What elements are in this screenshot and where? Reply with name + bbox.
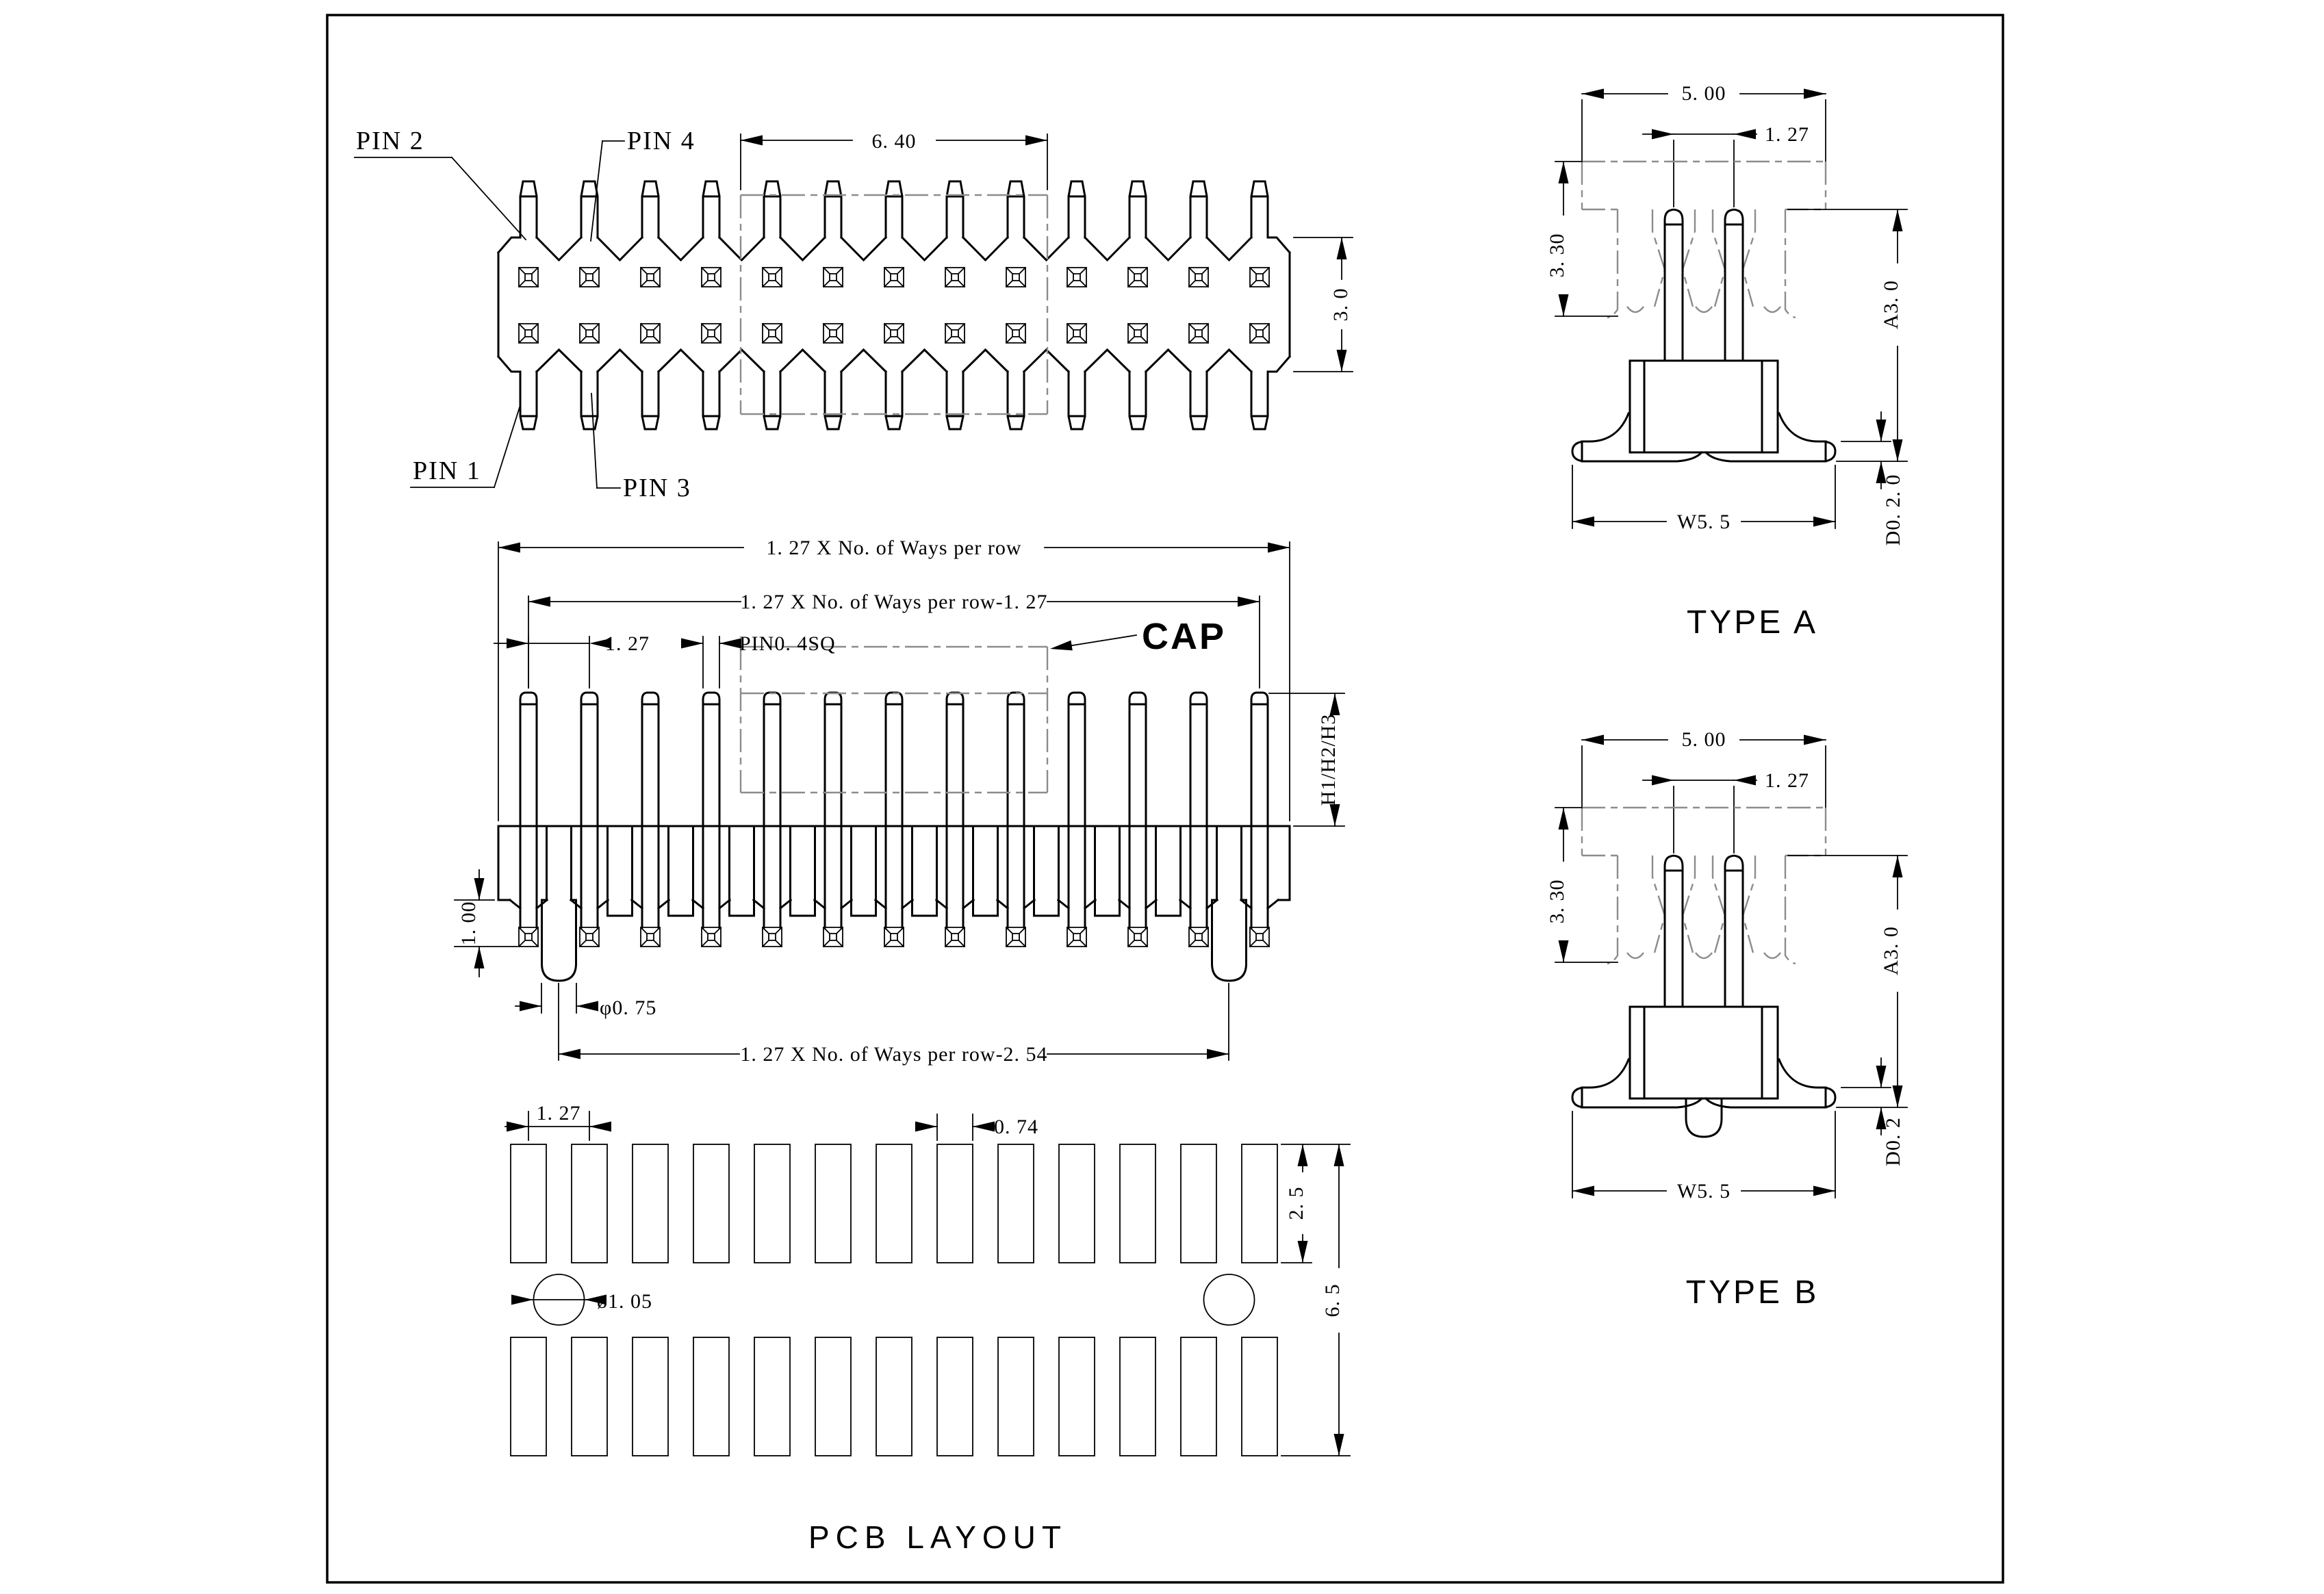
body-bottom-comb bbox=[498, 900, 1290, 916]
type-a-view: 5. 00 1. 27 3. 30 A3. 0 D0. 2. 0 W5. 5 T… bbox=[1546, 82, 1907, 641]
pin-contact-square bbox=[763, 324, 782, 343]
pcb-pad-top bbox=[815, 1144, 851, 1263]
smt-lead-left bbox=[1572, 413, 1702, 461]
front-pin bbox=[1190, 693, 1207, 826]
side-body bbox=[1630, 361, 1778, 452]
dimension-arrow bbox=[1582, 735, 1604, 745]
pcb-pad-top bbox=[998, 1144, 1034, 1263]
top-pin bbox=[764, 181, 780, 237]
dim-body-height: 3. 0 bbox=[1329, 288, 1352, 322]
dimension-arrow bbox=[1298, 1144, 1308, 1166]
dimension-arrow bbox=[1334, 1434, 1344, 1456]
side-pin bbox=[1665, 209, 1683, 361]
pcb-pad-top bbox=[1242, 1144, 1277, 1263]
pin-contact-square bbox=[1250, 324, 1269, 343]
pin2-label: PIN 2 bbox=[356, 127, 424, 155]
pin-contact-square bbox=[702, 324, 721, 343]
pin1-label: PIN 1 bbox=[413, 457, 481, 485]
pin-contact-square bbox=[1189, 927, 1208, 947]
pin3-label: PIN 3 bbox=[623, 474, 691, 502]
pin-contact-square bbox=[1006, 927, 1025, 947]
pin-contact-square bbox=[641, 268, 660, 287]
pcb-pad-bottom bbox=[754, 1337, 790, 1456]
side-pin bbox=[1725, 209, 1743, 361]
cap-phantom-outline bbox=[741, 195, 1047, 414]
dimension-arrow bbox=[1652, 775, 1674, 786]
dimension-arrow bbox=[1734, 129, 1756, 140]
pin-contact-square bbox=[884, 268, 904, 287]
bottom-pin bbox=[1008, 372, 1024, 429]
top-pin bbox=[520, 181, 537, 237]
dimension-arrow bbox=[1268, 543, 1290, 553]
front-pin bbox=[1008, 693, 1024, 826]
type-b-dim-cap-height: 3. 30 bbox=[1546, 879, 1568, 924]
dim-total-width: 1. 27 X No. of Ways per row bbox=[766, 537, 1021, 559]
dim-cap-width: 6. 40 bbox=[872, 130, 917, 153]
smt-lead-right bbox=[1706, 413, 1835, 461]
pin-contact-square bbox=[823, 268, 843, 287]
dimension-arrow bbox=[1559, 162, 1569, 183]
pin-contact-square bbox=[1128, 927, 1147, 947]
top-view: PIN 2 PIN 4 PIN 1 PIN 3 6. 40 3. 0 bbox=[355, 127, 1353, 502]
mating-socket-phantom bbox=[1582, 808, 1826, 856]
bottom-pin bbox=[1251, 372, 1268, 429]
pin-contact-square bbox=[580, 324, 599, 343]
dimension-arrow bbox=[1804, 735, 1826, 745]
type-a-label: TYPE A bbox=[1687, 604, 1818, 641]
pin-contact-square bbox=[641, 927, 660, 947]
technical-drawing: PIN 2 PIN 4 PIN 1 PIN 3 6. 40 3. 0 1. 27… bbox=[0, 0, 2324, 1594]
pin-contact-square bbox=[945, 268, 965, 287]
dim-pin-span: 1. 27 X No. of Ways per row-1. 27 bbox=[740, 591, 1047, 613]
top-pin bbox=[1251, 181, 1268, 237]
dimension-arrow bbox=[1893, 1085, 1903, 1107]
pin-contact-square bbox=[823, 324, 843, 343]
socket-contact-tip-phantom bbox=[1764, 307, 1780, 312]
pin-contact-square bbox=[884, 927, 904, 947]
smt-lead-right bbox=[1706, 1059, 1835, 1107]
dimension-arrow bbox=[1330, 693, 1340, 715]
dimension-arrow bbox=[1813, 1186, 1835, 1196]
bottom-pin bbox=[886, 372, 902, 429]
dimension-arrow bbox=[1572, 517, 1594, 527]
dimension-arrow bbox=[1876, 1066, 1887, 1088]
pin-contact-square bbox=[945, 927, 965, 947]
pcb-layout-geometry bbox=[505, 1111, 1350, 1456]
type-a-dim-pitch: 1. 27 bbox=[1765, 123, 1809, 146]
pcb-pad-bottom bbox=[633, 1337, 668, 1456]
pcb-pad-bottom bbox=[998, 1337, 1034, 1456]
pin4-label: PIN 4 bbox=[627, 127, 695, 155]
socket-contact-tip-phantom bbox=[1764, 953, 1780, 958]
top-pin bbox=[642, 181, 659, 237]
dimension-arrow bbox=[681, 639, 703, 649]
pin-contact-square bbox=[763, 927, 782, 947]
locating-peg bbox=[1212, 900, 1247, 981]
dimension-arrow bbox=[1734, 775, 1756, 786]
side-body bbox=[1630, 1007, 1778, 1098]
type-b-view: 5. 00 1. 27 3. 30 A3. 0 D0. 2 W5. 5 TYPE… bbox=[1546, 728, 1907, 1311]
dimension-arrow bbox=[1559, 808, 1569, 830]
dimension-arrow bbox=[511, 1295, 533, 1305]
bottom-pin bbox=[1190, 372, 1207, 429]
pcb-pad-top bbox=[693, 1144, 729, 1263]
pin3-leader bbox=[591, 394, 597, 488]
socket-wall-phantom bbox=[1607, 209, 1796, 318]
pcb-dim-hole: ø1. 05 bbox=[597, 1290, 652, 1313]
dimension-arrow bbox=[1025, 136, 1047, 146]
pcb-hole-right bbox=[1204, 1274, 1255, 1325]
bottom-pin bbox=[947, 372, 963, 429]
dimension-arrow bbox=[1298, 1241, 1308, 1263]
pin-contact-square bbox=[945, 324, 965, 343]
pcb-pad-bottom bbox=[1181, 1337, 1216, 1456]
type-a-dim-a: A3. 0 bbox=[1880, 280, 1902, 329]
pin-contact-square bbox=[1006, 268, 1025, 287]
front-pin bbox=[1069, 693, 1085, 826]
dim-pitch: 1. 27 bbox=[605, 632, 650, 655]
top-pin bbox=[947, 181, 963, 237]
dimension-arrow bbox=[1893, 856, 1903, 877]
pcb-pad-bottom bbox=[815, 1337, 851, 1456]
bottom-pin bbox=[642, 372, 659, 429]
locating-peg bbox=[542, 900, 576, 981]
pin-contact-square bbox=[884, 324, 904, 343]
type-b-dim-pitch: 1. 27 bbox=[1765, 769, 1809, 792]
dimension-arrow bbox=[1893, 439, 1903, 461]
dimension-arrow bbox=[1893, 209, 1903, 231]
pcb-pad-bottom bbox=[1059, 1337, 1095, 1456]
top-pin bbox=[1190, 181, 1207, 237]
dimension-arrow bbox=[1559, 940, 1569, 962]
pcb-pad-bottom bbox=[937, 1337, 973, 1456]
pcb-pad-bottom bbox=[511, 1337, 546, 1456]
pin2-leader bbox=[452, 157, 526, 240]
dimension-arrow bbox=[474, 878, 485, 900]
type-b-dim-w: W5. 5 bbox=[1677, 1180, 1731, 1203]
dimension-arrow bbox=[559, 1049, 580, 1059]
pin-contact-square bbox=[519, 324, 538, 343]
type-b-label: TYPE B bbox=[1686, 1274, 1819, 1311]
pin-contact-square bbox=[1189, 324, 1208, 343]
dimension-arrow bbox=[498, 543, 520, 553]
pcb-dim-pitch: 1. 27 bbox=[537, 1102, 581, 1124]
side-pin bbox=[1725, 856, 1743, 1007]
dim-pin-square: PIN0. 4SQ bbox=[739, 632, 836, 655]
pcb-pad-top bbox=[1120, 1144, 1155, 1263]
pcb-pad-bottom bbox=[1120, 1337, 1155, 1456]
pcb-pad-top bbox=[511, 1144, 546, 1263]
type-b-geometry bbox=[1555, 735, 1907, 1198]
front-view: 1. 27 X No. of Ways per row 1. 27 X No. … bbox=[455, 537, 1344, 1066]
type-b-dim-width: 5. 00 bbox=[1682, 728, 1726, 751]
dimension-arrow bbox=[741, 136, 763, 146]
dim-peg-diameter: φ0. 75 bbox=[600, 997, 656, 1019]
pcb-pad-bottom bbox=[572, 1337, 607, 1456]
mating-socket-phantom bbox=[1582, 162, 1826, 209]
type-b-dim-a: A3. 0 bbox=[1880, 926, 1902, 975]
dimension-arrow bbox=[1876, 420, 1887, 441]
top-pin bbox=[1069, 181, 1085, 237]
type-a-dim-width: 5. 00 bbox=[1682, 82, 1726, 105]
front-pin bbox=[764, 693, 780, 826]
pin-contact-square bbox=[1250, 268, 1269, 287]
header-body-outline bbox=[498, 237, 1290, 372]
dimension-arrow bbox=[507, 639, 528, 649]
dimension-arrow bbox=[915, 1122, 937, 1132]
pin1-leader bbox=[494, 405, 520, 487]
dimension-arrow bbox=[719, 639, 741, 649]
front-pin bbox=[886, 693, 902, 826]
socket-contact-tip-phantom bbox=[1696, 307, 1712, 312]
dimension-arrow bbox=[1582, 89, 1604, 99]
front-pin bbox=[581, 693, 598, 826]
pin-contact-square bbox=[1189, 268, 1208, 287]
dimension-arrow bbox=[1337, 350, 1347, 372]
dimension-arrow bbox=[528, 597, 550, 607]
pin-contact-square bbox=[702, 268, 721, 287]
dim-peg-protrusion: 1. 00 bbox=[457, 901, 480, 946]
front-pin bbox=[947, 693, 963, 826]
dim-height-h123: H1/H2/H3 bbox=[1317, 714, 1340, 806]
pin-contact-square bbox=[823, 927, 843, 947]
front-pin bbox=[520, 693, 537, 826]
front-pin bbox=[642, 693, 659, 826]
top-pin bbox=[825, 181, 841, 237]
type-b-dim-d: D0. 2 bbox=[1882, 1117, 1904, 1166]
pin-contact-square bbox=[1128, 324, 1147, 343]
dimension-arrow bbox=[520, 1001, 541, 1012]
pin-contact-square bbox=[580, 268, 599, 287]
pcb-pad-top bbox=[754, 1144, 790, 1263]
pcb-pad-top bbox=[1181, 1144, 1216, 1263]
socket-wall-phantom bbox=[1607, 856, 1796, 964]
bottom-pin bbox=[581, 372, 598, 429]
dimension-arrow bbox=[507, 1122, 528, 1132]
type-a-geometry bbox=[1555, 89, 1907, 529]
pin-contact-square bbox=[1250, 927, 1269, 947]
pin-contact-square bbox=[763, 268, 782, 287]
dimension-arrow bbox=[1813, 517, 1835, 527]
pcb-dim-pad-width: 0. 74 bbox=[994, 1116, 1038, 1138]
socket-contact-tip-phantom bbox=[1696, 953, 1712, 958]
dimension-arrow bbox=[589, 1122, 611, 1132]
dimension-arrow bbox=[1337, 237, 1347, 259]
top-pin bbox=[703, 181, 719, 237]
pcb-pad-bottom bbox=[876, 1337, 912, 1456]
pcb-layout-title: PCB LAYOUT bbox=[808, 1519, 1067, 1555]
pcb-dim-row-span: 6. 5 bbox=[1321, 1284, 1344, 1317]
bottom-pin bbox=[764, 372, 780, 429]
type-a-dim-cap-height: 3. 30 bbox=[1546, 233, 1568, 278]
cap-label: CAP bbox=[1142, 616, 1226, 657]
dimension-arrow bbox=[1330, 804, 1340, 826]
dimension-arrow bbox=[1652, 129, 1674, 140]
pin-contact-square bbox=[580, 927, 599, 947]
pin-contact-square bbox=[1128, 268, 1147, 287]
pcb-pad-top bbox=[1059, 1144, 1095, 1263]
front-pin bbox=[825, 693, 841, 826]
pin-contact-square bbox=[1067, 268, 1086, 287]
pcb-dim-pad-height: 2. 5 bbox=[1285, 1187, 1307, 1220]
bottom-pin bbox=[520, 372, 537, 429]
socket-contact-tip-phantom bbox=[1627, 307, 1644, 312]
top-pin bbox=[581, 181, 598, 237]
pin-contact-square bbox=[702, 927, 721, 947]
pcb-layout: 1. 27 0. 74 ø1. 05 2. 5 6. 5 PCB LAYOUT bbox=[505, 1102, 1350, 1555]
pcb-pad-top bbox=[937, 1144, 973, 1263]
cap-phantom-outline bbox=[741, 647, 1047, 793]
front-pin bbox=[1251, 693, 1268, 826]
pcb-pad-top bbox=[876, 1144, 912, 1263]
pin-contact-square bbox=[1067, 927, 1086, 947]
top-pin bbox=[1129, 181, 1146, 237]
type-a-dim-w: W5. 5 bbox=[1677, 511, 1731, 533]
pcb-pad-top bbox=[633, 1144, 668, 1263]
datasheet-page: PIN 2 PIN 4 PIN 1 PIN 3 6. 40 3. 0 1. 27… bbox=[0, 0, 2324, 1594]
side-pin bbox=[1665, 856, 1683, 1007]
dimension-arrow bbox=[474, 947, 485, 968]
front-pin bbox=[703, 693, 719, 826]
dimension-arrow bbox=[1334, 1144, 1344, 1166]
bottom-pin bbox=[1069, 372, 1085, 429]
bottom-pin bbox=[1129, 372, 1146, 429]
dimension-arrow bbox=[973, 1122, 995, 1132]
bottom-pin bbox=[825, 372, 841, 429]
dimension-arrow bbox=[1804, 89, 1826, 99]
type-a-dim-d: D0. 2. 0 bbox=[1882, 474, 1904, 546]
dimension-arrow bbox=[576, 1001, 598, 1012]
pin-contact-square bbox=[519, 268, 538, 287]
dimension-arrow bbox=[1207, 1049, 1229, 1059]
pcb-pad-bottom bbox=[693, 1337, 729, 1456]
dimension-arrow bbox=[1238, 597, 1260, 607]
bottom-pin bbox=[703, 372, 719, 429]
front-pin bbox=[1129, 693, 1146, 826]
pin-contact-square bbox=[1067, 324, 1086, 343]
pcb-pad-bottom bbox=[1242, 1337, 1277, 1456]
top-pin bbox=[1008, 181, 1024, 237]
pin-contact-square bbox=[519, 927, 538, 947]
dimension-arrow bbox=[1572, 1186, 1594, 1196]
dim-peg-span: 1. 27 X No. of Ways per row-2. 54 bbox=[740, 1043, 1047, 1066]
dimension-arrow bbox=[1559, 294, 1569, 316]
top-pin bbox=[886, 181, 902, 237]
top-view-geometry bbox=[355, 134, 1353, 488]
pin-contact-square bbox=[1006, 324, 1025, 343]
cap-arrow bbox=[1049, 641, 1073, 654]
smt-lead-left bbox=[1572, 1059, 1702, 1107]
drawing-border bbox=[327, 15, 2003, 1582]
socket-contact-tip-phantom bbox=[1627, 953, 1644, 958]
pin-contact-square bbox=[641, 324, 660, 343]
pcb-pad-top bbox=[572, 1144, 607, 1263]
